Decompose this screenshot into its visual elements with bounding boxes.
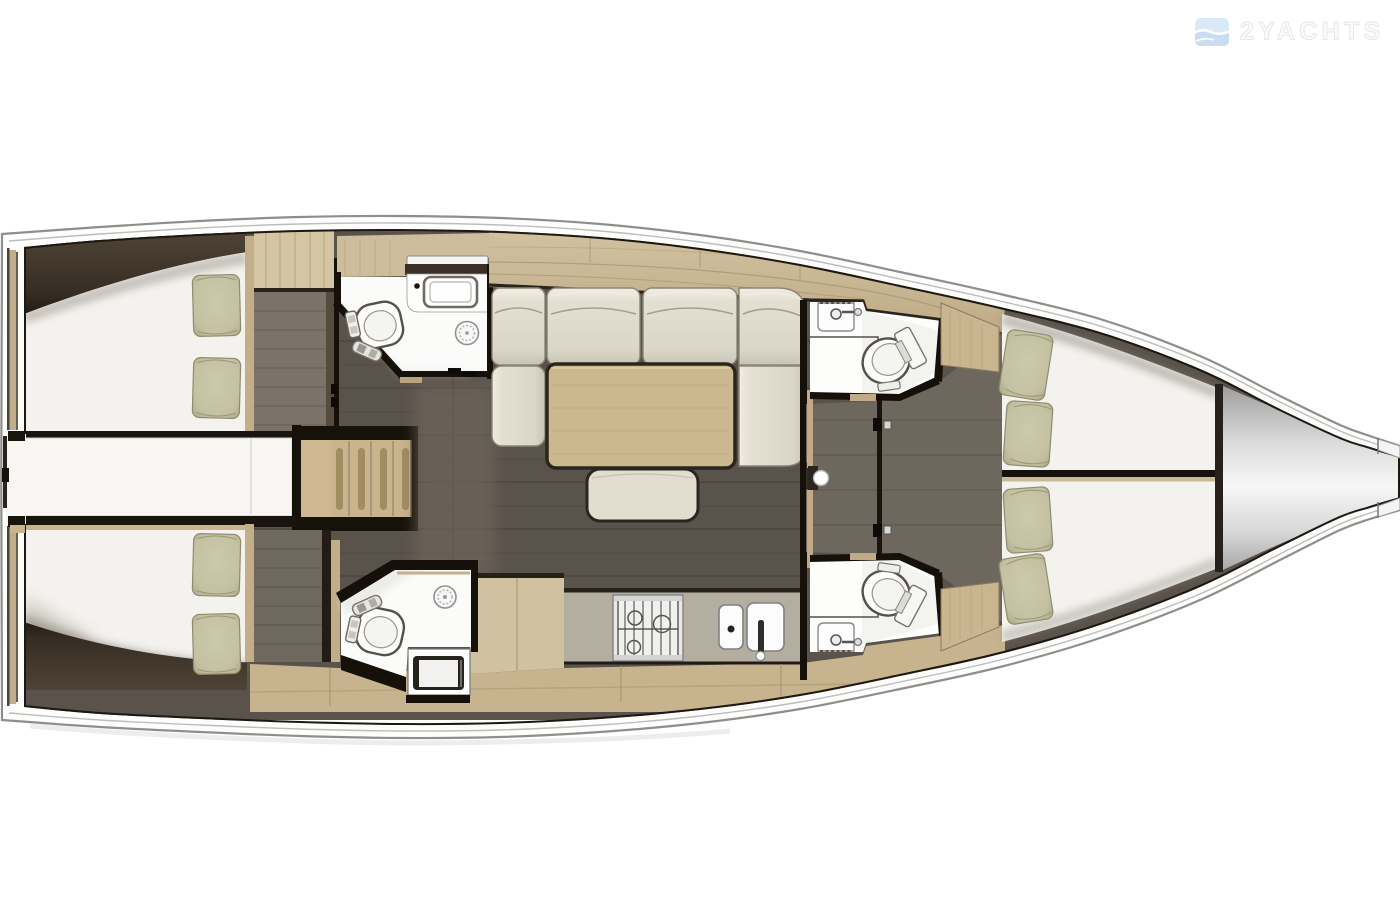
svg-text:2YACHTS: 2YACHTS xyxy=(1240,18,1385,46)
